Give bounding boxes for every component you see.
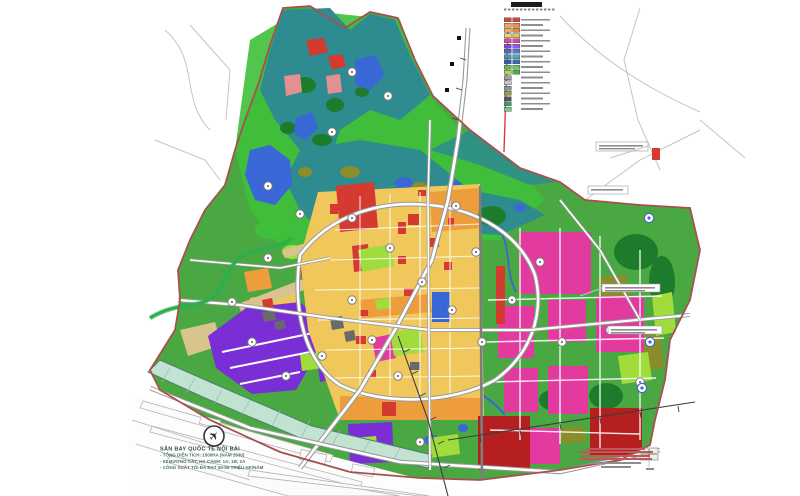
legend-panel: [504, 0, 579, 112]
legend-label-placeholder: [521, 40, 550, 42]
legend-label-placeholder: [521, 87, 543, 89]
legend-item: [504, 39, 579, 44]
legend-swatch: [504, 28, 512, 33]
legend-item: [504, 102, 579, 107]
legend-label-placeholder: [521, 56, 543, 58]
legend-item: [504, 18, 579, 23]
legend-swatch: [504, 75, 512, 80]
legend-swatch: [504, 86, 512, 91]
legend-swatch: [513, 65, 521, 70]
legend-swatch: [504, 60, 512, 65]
legend-swatch: [513, 23, 521, 28]
master-plan-map: ✈: [0, 0, 800, 496]
legend-label-placeholder: [521, 24, 543, 26]
legend-label-placeholder: [521, 66, 543, 68]
legend-swatch: [504, 18, 512, 23]
legend-label-placeholder: [521, 82, 550, 84]
legend-swatch: [504, 23, 512, 28]
airplane-icon: ✈: [204, 426, 224, 446]
legend-label-placeholder: [521, 92, 550, 94]
legend-swatch: [513, 28, 521, 33]
legend-label-placeholder: [521, 61, 550, 63]
legend-item: [504, 70, 579, 75]
legend-swatch: [513, 18, 521, 23]
legend-label-placeholder: [521, 29, 550, 31]
legend-swatch: [513, 33, 521, 38]
legend-items: [504, 18, 579, 112]
legend-swatch: [513, 60, 521, 65]
legend-item: [504, 91, 579, 96]
legend-swatch: [513, 44, 521, 49]
legend-label-placeholder: [521, 45, 543, 47]
note-block: [576, 446, 656, 469]
legend-item: [504, 65, 579, 70]
legend-item: [504, 28, 579, 33]
legend-swatch: [504, 102, 512, 107]
legend-item: [504, 107, 579, 112]
legend-item: [504, 44, 579, 49]
legend-label-placeholder: [521, 19, 550, 21]
legend-swatch: [513, 39, 521, 44]
airport-annotation: SÂN BAY QUỐC TẾ NỘI BÀI - TỔNG DIỆN TÍCH…: [160, 446, 340, 471]
legend-swatch: [504, 65, 512, 70]
legend-swatch: [504, 107, 512, 112]
legend-label-placeholder: [521, 50, 550, 52]
legend-swatch: [513, 70, 521, 75]
map-page: ✈: [0, 0, 800, 496]
legend-item: [504, 60, 579, 65]
legend-swatch: [504, 70, 512, 75]
legend-swatch: [504, 54, 512, 59]
legend-item: [504, 75, 579, 80]
legend-item: [504, 33, 579, 38]
legend-item: [504, 54, 579, 59]
legend-title-bar: [511, 2, 542, 7]
legend-item: [504, 86, 579, 91]
legend-label-placeholder: [521, 98, 543, 100]
legend-label-placeholder: [521, 77, 543, 79]
legend-swatch: [504, 91, 512, 96]
legend-label-placeholder: [521, 108, 543, 110]
legend-label-placeholder: [521, 35, 543, 37]
legend-swatch: [504, 44, 512, 49]
legend-item: [504, 96, 579, 101]
legend-swatch: [513, 49, 521, 54]
legend-swatch: [504, 33, 512, 38]
legend-swatch: [504, 49, 512, 54]
legend-swatch: [513, 54, 521, 59]
legend-item: [504, 81, 579, 86]
legend-item: [504, 49, 579, 54]
legend-swatch: [504, 39, 512, 44]
legend-swatch: [504, 96, 512, 101]
legend-label-placeholder: [521, 103, 550, 105]
legend-item: [504, 23, 579, 28]
legend-subtitle-placeholder: [504, 9, 556, 11]
airport-info-line: - CÔNG SUẤT TỐI ĐA ĐẠT 50-55 TRIỆU HK/NĂ…: [160, 465, 340, 471]
legend-swatch: [504, 81, 512, 86]
legend-label-placeholder: [521, 71, 550, 73]
